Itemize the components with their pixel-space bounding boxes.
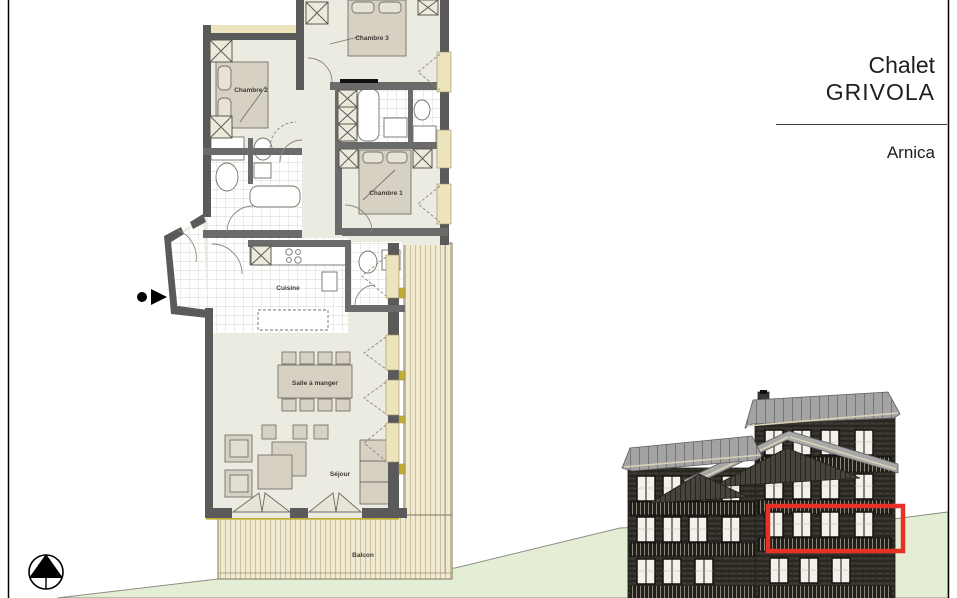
room-label-chambre-1: Chambre 1 <box>369 190 403 197</box>
room-label-cuisine: Cuisine <box>276 285 300 292</box>
north-arrow-icon <box>29 554 63 589</box>
title-block-divider <box>776 124 947 125</box>
room-label-chambre-2: Chambre 2 <box>234 87 268 94</box>
title-block: Chalet GRIVOLA <box>705 52 935 106</box>
entrance-arrow-icon <box>137 289 167 305</box>
chalet-label: Chalet <box>705 52 935 79</box>
room-label-sejour: Séjour <box>330 471 351 478</box>
room-label-salle-a-manger: Salle à manger <box>292 380 338 387</box>
drawing-sheet: Chambre 3 Chambre 2 Chambre 1 Cuisine Sa… <box>0 0 957 598</box>
room-label-balcon: Balcon <box>352 552 374 559</box>
apartment-name: Arnica <box>705 143 935 163</box>
building-elevation <box>622 390 900 598</box>
room-label-chambre-3: Chambre 3 <box>355 35 389 42</box>
chalet-name: GRIVOLA <box>705 79 935 106</box>
